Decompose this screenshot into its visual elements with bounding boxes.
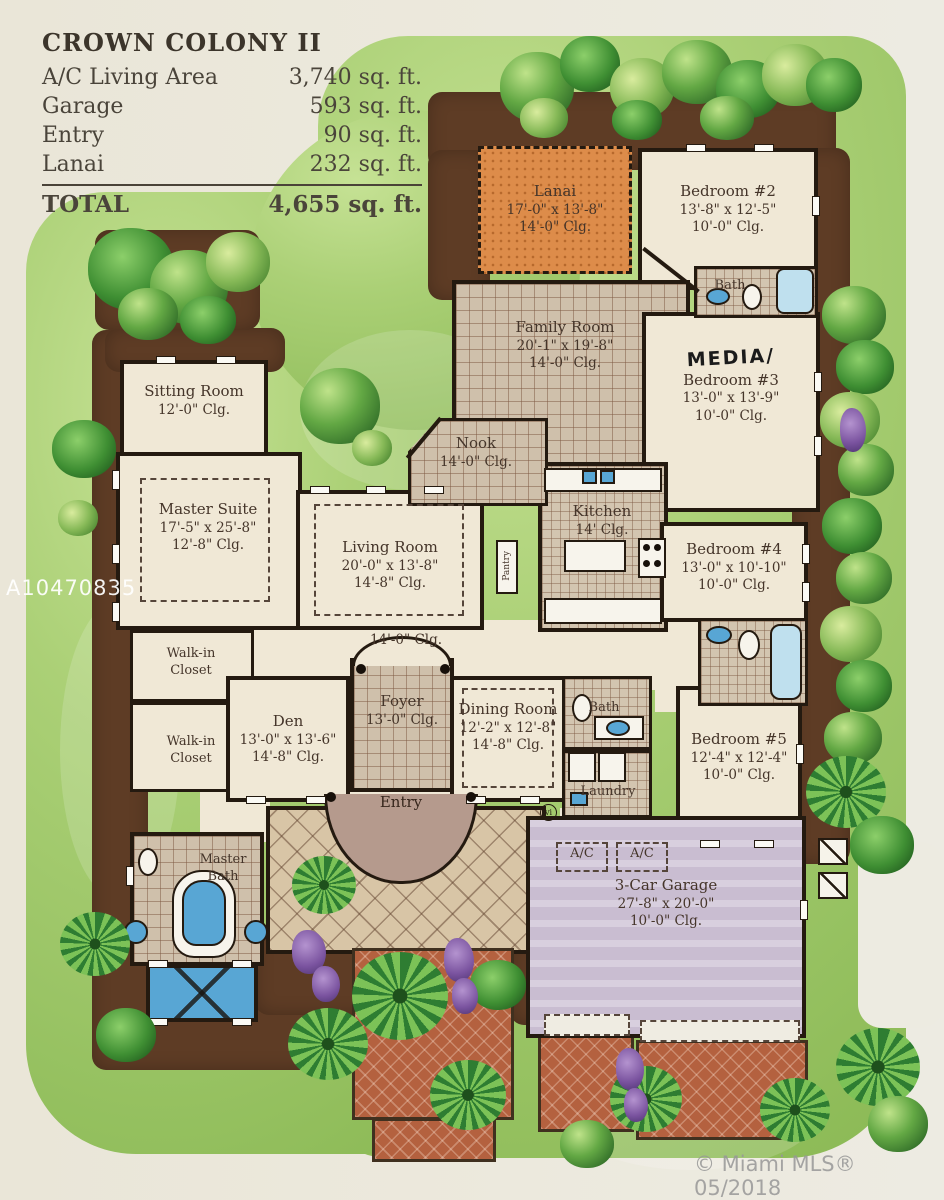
- plan-title: CROWN COLONY II: [42, 28, 422, 57]
- room-label-bedroom3-media: MEDIA/ Bedroom #3 13'-0" x 13'-9" 10'-0"…: [648, 346, 814, 425]
- window: [306, 796, 326, 804]
- mls-watermark: © Miami MLS® 05/2018: [694, 1152, 944, 1200]
- ac-label: A/C: [618, 846, 666, 863]
- tree: [520, 98, 568, 138]
- bathtub: [776, 268, 814, 314]
- room-label-garage: 3-Car Garage 27'-8" x 20'-0" 10'-0" Clg.: [566, 876, 766, 931]
- palm-tree: [836, 1028, 920, 1106]
- kitchen-sink: [582, 470, 597, 484]
- column: [440, 664, 450, 674]
- tree: [820, 606, 882, 662]
- room-label-den: Den 13'-0" x 13'-6" 14'-8" Clg.: [228, 712, 348, 767]
- window: [754, 840, 774, 848]
- room-label-laundry: Laundry: [566, 784, 650, 801]
- palm-tree: [60, 912, 130, 976]
- window: [246, 796, 266, 804]
- window: [112, 544, 120, 564]
- window: [310, 486, 330, 494]
- window: [216, 356, 236, 364]
- window: [148, 960, 168, 968]
- tree: [836, 340, 894, 394]
- window: [232, 1018, 252, 1026]
- tree: [470, 960, 526, 1010]
- tree: [58, 500, 98, 536]
- room-label-wic2: Walk-in Closet: [148, 734, 234, 768]
- range-burner: [654, 560, 661, 567]
- kitchen-island: [564, 540, 626, 572]
- range-burner: [643, 560, 650, 567]
- room-label-bedroom4: Bedroom #4 13'-0" x 10'-10" 10'-0" Clg.: [664, 540, 804, 595]
- window: [814, 372, 822, 392]
- room-label-foyer: Foyer 13'-0" Clg.: [356, 692, 448, 729]
- bath-sink: [606, 720, 630, 736]
- vi-marker: vi: [540, 804, 557, 821]
- room-label-bedroom2: Bedroom #2 13'-8" x 12'-5" 10'-0" Clg.: [653, 182, 803, 237]
- tree: [822, 286, 886, 344]
- window: [232, 960, 252, 968]
- tree: [180, 296, 236, 344]
- flower-cluster: [452, 978, 478, 1014]
- toilet: [738, 630, 760, 660]
- meter-icon: [818, 838, 848, 865]
- room-label-wic1: Walk-in Closet: [148, 646, 234, 680]
- column: [356, 664, 366, 674]
- tree: [206, 232, 270, 292]
- room-label-dining: Dining Room 12'-2" x 12'-8" 14'-8" Clg.: [448, 700, 568, 755]
- column: [466, 792, 476, 802]
- tree: [52, 420, 116, 478]
- window: [800, 900, 808, 920]
- room-label-bath2: Bath: [700, 278, 760, 295]
- hall-ceiling-label: 14'-0" Clg.: [358, 632, 454, 650]
- vanity-sink: [244, 920, 268, 944]
- garage-door: [640, 1020, 800, 1042]
- pool-window: [146, 964, 258, 1022]
- palm-tree: [760, 1078, 830, 1142]
- tree: [700, 96, 754, 140]
- room-label-living: Living Room 20'-0" x 13'-8" 14'-8" Clg.: [310, 538, 470, 593]
- window: [812, 196, 820, 216]
- toilet: [138, 848, 158, 876]
- tree: [352, 430, 392, 466]
- flower-cluster: [312, 966, 340, 1002]
- entry-label: Entry: [366, 793, 436, 813]
- master-tub: [182, 880, 226, 946]
- legend-total-row: TOTAL4,655 sq. ft.: [42, 190, 422, 219]
- range-burner: [654, 544, 661, 551]
- window: [156, 356, 176, 364]
- tree: [838, 444, 894, 496]
- tree: [118, 288, 178, 340]
- kitchen-range: [638, 538, 666, 578]
- window: [366, 486, 386, 494]
- column: [326, 792, 336, 802]
- meter-icon: [818, 872, 848, 899]
- window: [814, 436, 822, 456]
- tree: [612, 100, 662, 140]
- room-label-masterbath: Master Bath: [186, 852, 260, 886]
- tree: [850, 816, 914, 874]
- legend-row: A/C Living Area3,740 sq. ft.: [42, 63, 422, 92]
- bath-sink: [706, 626, 732, 644]
- tree: [806, 58, 862, 112]
- legend-row: Entry90 sq. ft.: [42, 121, 422, 150]
- ac-label: A/C: [558, 846, 606, 863]
- flower-cluster: [444, 938, 474, 982]
- window: [700, 840, 720, 848]
- room-label-lanai: Lanai 17'-0" x 13'-8" 14'-0" Clg.: [492, 182, 618, 237]
- room-label-nook: Nook 14'-0" Clg.: [426, 434, 526, 471]
- range-burner: [643, 544, 650, 551]
- tree: [822, 498, 882, 554]
- palm-tree: [292, 856, 356, 914]
- window: [112, 470, 120, 490]
- washer: [568, 752, 596, 782]
- floor-plan-canvas: vi Lanai 17'-0" x 13'-8" 14'-0" Clg. Bed…: [0, 0, 944, 1200]
- palm-tree: [430, 1060, 506, 1130]
- kitchen-sink: [600, 470, 615, 484]
- legend-row: Lanai232 sq. ft.: [42, 150, 422, 179]
- tree: [868, 1096, 928, 1152]
- window: [754, 144, 774, 152]
- window: [686, 144, 706, 152]
- palm-tree: [288, 1008, 368, 1080]
- window: [112, 602, 120, 622]
- room-label-pantry: Pantry: [502, 546, 514, 586]
- garage-door: [544, 1014, 630, 1036]
- dryer: [598, 752, 626, 782]
- legend-divider: [42, 184, 422, 186]
- tree: [96, 1008, 156, 1062]
- room-label-kitchen: Kitchen 14' Clg.: [552, 502, 652, 539]
- room-label-bedroom5: Bedroom #5 12'-4" x 12'-4" 10'-0" Clg.: [676, 730, 802, 785]
- window: [520, 796, 540, 804]
- area-legend: CROWN COLONY II A/C Living Area3,740 sq.…: [42, 28, 422, 219]
- listing-id-watermark: A10470835: [6, 576, 136, 600]
- tree: [560, 1120, 614, 1168]
- legend-row: Garage593 sq. ft.: [42, 92, 422, 121]
- flower-cluster: [624, 1088, 648, 1122]
- window: [126, 866, 134, 886]
- window: [424, 486, 444, 494]
- flower-cluster: [616, 1048, 644, 1090]
- kitchen-counter: [544, 598, 662, 624]
- room-label-family: Family Room 20'-1" x 19'-8" 14'-0" Clg.: [470, 318, 660, 373]
- palm-tree: [352, 952, 448, 1040]
- room-label-bathpool: Bath: [574, 700, 634, 717]
- bathtub: [770, 624, 802, 700]
- tree: [836, 660, 892, 712]
- tree: [836, 552, 892, 604]
- room-label-sitting: Sitting Room 12'-0" Clg.: [128, 382, 260, 419]
- room-label-master: Master Suite 17'-5" x 25'-8" 12'-8" Clg.: [126, 500, 290, 555]
- flower-cluster: [840, 408, 866, 452]
